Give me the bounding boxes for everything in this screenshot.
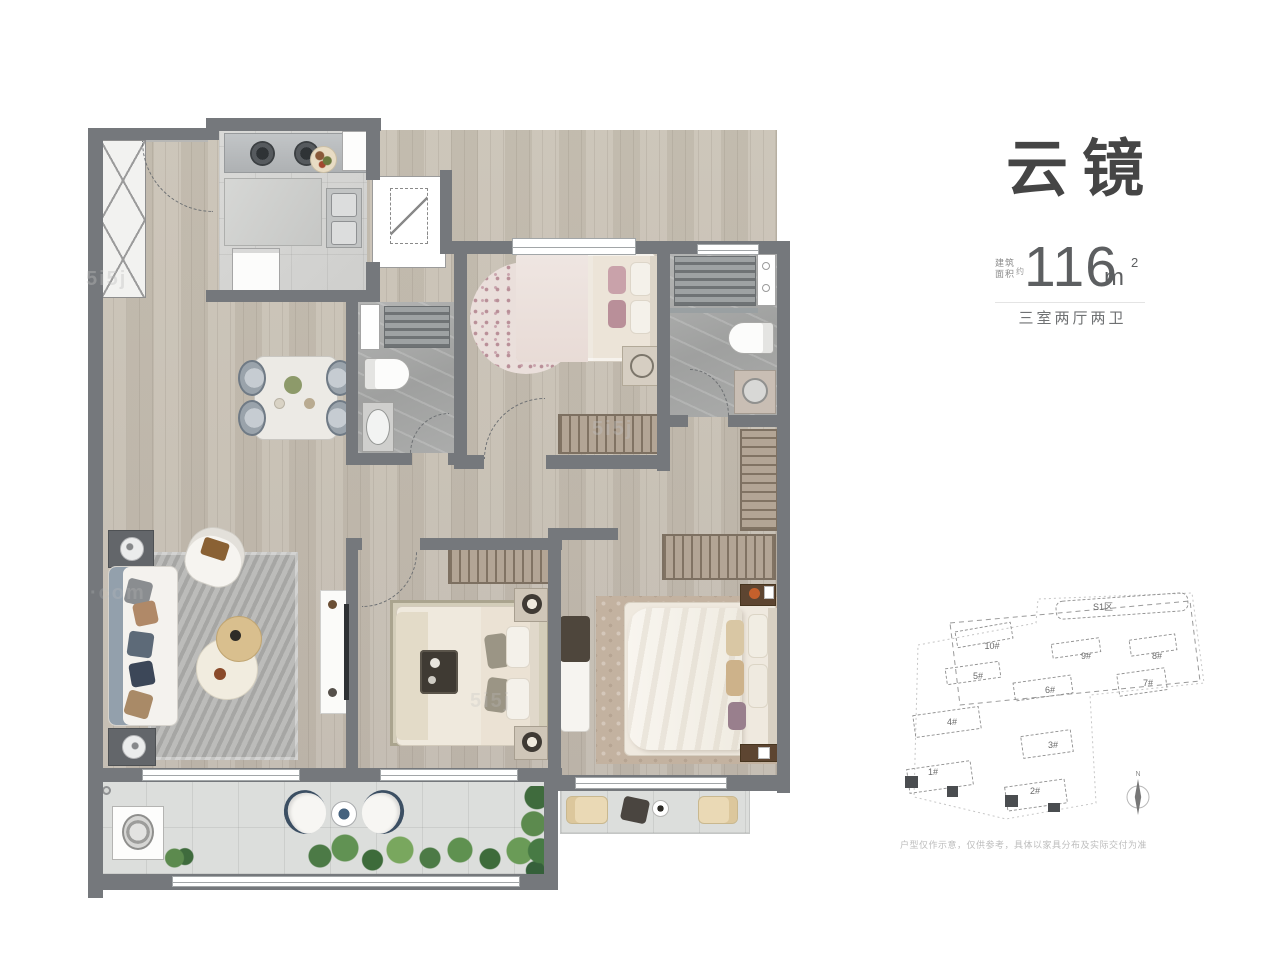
nightstand-lamp — [522, 732, 542, 752]
highlight-unit — [905, 776, 918, 788]
layout-text: 三室两厅两卫 — [985, 307, 1160, 328]
wall — [548, 528, 561, 780]
bath2-toilet — [728, 322, 774, 354]
sink-basin — [331, 221, 357, 245]
pillow-white — [630, 262, 652, 296]
wall — [206, 118, 219, 140]
bedroom2-blanket — [516, 252, 588, 362]
terrace-table — [652, 800, 669, 817]
sink-basin — [331, 193, 357, 217]
highlight-unit — [1048, 803, 1060, 812]
bath1-cabinet — [360, 304, 380, 350]
master-duvet — [628, 608, 742, 750]
building-label-1: 1# — [928, 767, 938, 777]
area-label: 建筑 面积 — [995, 258, 1015, 280]
bedroom3-headboard — [530, 612, 539, 742]
wall — [777, 241, 790, 793]
floor-plan: 5i5j 5i5j 5i5j ·com — [0, 0, 820, 961]
terrace-lounge — [698, 796, 738, 824]
site-boundary-outline — [914, 593, 1204, 819]
stove-burner — [250, 141, 275, 166]
washer-door — [122, 814, 154, 850]
bedroom2-lamp — [630, 354, 654, 378]
sofa-pillow — [126, 630, 154, 658]
wall — [454, 241, 467, 469]
building-label-4: 4# — [947, 717, 957, 727]
dining-chair — [238, 400, 266, 436]
site-plan: S1区 10# 9# 8# 5# 6# 7# 4# 3# 1# 2# N — [888, 583, 1210, 839]
compass: N — [1127, 771, 1149, 815]
building-label-8: 8# — [1152, 651, 1162, 661]
ac-unit-outline — [390, 188, 428, 244]
divider-line — [995, 302, 1145, 303]
bath1-shower-mat — [384, 306, 450, 348]
highlight-unit — [1005, 795, 1018, 807]
area-label-line1: 建筑 — [995, 258, 1015, 269]
bath2-window — [697, 244, 759, 255]
zone-outline — [1056, 592, 1189, 619]
nightstand-lamp — [522, 594, 542, 614]
floorplan-page: 5i5j 5i5j 5i5j ·com 云镜 建筑 面积 约 116 m 2 三… — [0, 0, 1280, 961]
dining-chair — [238, 360, 266, 396]
balcony-table — [331, 801, 357, 827]
bath2-cabinet-knob — [762, 262, 770, 270]
building-label-6: 6# — [1045, 685, 1055, 695]
tray-cup — [430, 658, 440, 668]
watermark: 5i5j — [470, 690, 511, 713]
area-unit-sup: 2 — [1131, 255, 1138, 270]
terrace-lounge — [566, 796, 608, 824]
pillow-tan — [726, 660, 744, 696]
wall — [546, 455, 667, 469]
side-table-plant — [122, 735, 146, 759]
nightstand-item — [758, 747, 770, 759]
wall — [346, 302, 358, 457]
building-label-3: 3# — [1048, 740, 1058, 750]
food-plate — [310, 146, 337, 173]
tray-cup — [428, 676, 436, 684]
building-label-7: 7# — [1143, 678, 1153, 688]
dining-table — [254, 356, 338, 440]
building-label-9: 9# — [1081, 651, 1091, 661]
coffee-table-decor — [230, 630, 241, 641]
floor-drain — [102, 786, 111, 795]
water-heater — [342, 131, 368, 171]
wall — [206, 118, 381, 131]
pillow-white — [748, 614, 768, 658]
wall — [670, 415, 688, 427]
pillow-white — [506, 626, 530, 668]
zone-label: S1区 — [1093, 602, 1113, 612]
pillow-tan — [726, 620, 744, 656]
wall — [366, 118, 380, 180]
master-window — [575, 777, 727, 789]
living-balcony-window — [142, 769, 300, 781]
building-label-10: 10# — [984, 641, 999, 651]
plants-strip — [305, 834, 555, 874]
closet-rack-horizontal — [662, 534, 776, 580]
watermark: 5i5j — [592, 418, 633, 441]
highlight-unit — [947, 786, 958, 797]
area-unit: m — [1104, 264, 1124, 292]
table-plate — [304, 398, 315, 409]
pillow-white — [748, 664, 768, 708]
coffee-table-decor — [214, 668, 226, 680]
kitchen-island — [224, 178, 322, 246]
bench-decor — [560, 616, 590, 662]
building-6-outline — [1013, 675, 1073, 701]
area-approx-label: 约 — [1016, 266, 1024, 277]
wall — [420, 538, 562, 550]
pillow-mauve — [728, 702, 746, 730]
wall — [88, 128, 103, 898]
master-lamp-orange — [749, 588, 760, 599]
bath1-toilet — [364, 358, 410, 390]
bath1-basin — [366, 409, 390, 445]
bedroom3-wardrobe — [448, 546, 550, 584]
site-parcel-outline — [950, 601, 1200, 705]
side-table-plant — [120, 537, 144, 561]
console-decor — [328, 688, 337, 697]
bath2-partition — [670, 308, 758, 313]
area-label-line2: 面积 — [995, 269, 1015, 280]
watermark: 5i5j — [86, 268, 127, 291]
disclaimer-text: 户型仅作示意，仅供参考，具体以家具分布及实际交付为准 — [900, 838, 1150, 851]
building-label-5: 5# — [973, 671, 983, 681]
watermark-suffix: ·com — [90, 582, 146, 605]
tv-screen — [344, 604, 349, 700]
wall — [728, 415, 777, 427]
bath2-shower-mat — [674, 256, 756, 306]
bedroom2-window — [512, 238, 636, 255]
table-centerpiece — [284, 376, 302, 394]
wall — [88, 128, 213, 140]
sofa-pillow — [128, 660, 156, 688]
bath2-basin — [742, 378, 768, 404]
compass-north-label: N — [1135, 771, 1140, 778]
plan-title: 云镜 — [985, 118, 1165, 208]
compass-needle — [1135, 779, 1141, 815]
bath2-cabinet-knob — [762, 284, 770, 292]
pillow-white — [630, 300, 652, 334]
building-label-2: 2# — [1030, 786, 1040, 796]
nightstand-item — [764, 586, 774, 599]
wall — [346, 453, 412, 465]
pillow-pink — [608, 300, 626, 328]
plant-small — [164, 844, 194, 872]
console-decor — [328, 600, 337, 609]
pillow-pink — [608, 266, 626, 294]
table-plate — [274, 398, 285, 409]
master-headboard — [768, 608, 777, 750]
bed-tray — [420, 650, 458, 694]
wall — [657, 241, 670, 471]
terrace-chair — [620, 796, 650, 825]
building-9-outline — [1051, 638, 1100, 659]
closet-rack-vertical — [740, 429, 778, 531]
balcony-window — [172, 876, 520, 887]
wall — [544, 768, 558, 890]
wall — [454, 455, 484, 469]
wall — [206, 290, 380, 302]
bedroom3-window — [380, 769, 518, 781]
dishwasher — [232, 248, 280, 292]
